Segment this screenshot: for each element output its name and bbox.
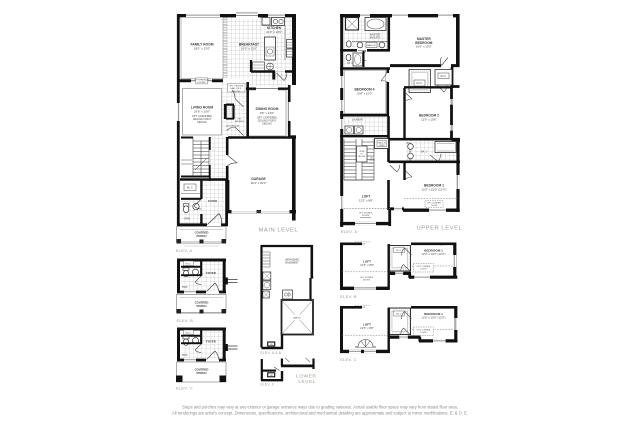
svg-text:W.I.C.: W.I.C. xyxy=(396,314,402,316)
svg-text:DOOR: DOOR xyxy=(421,332,428,334)
svg-text:W.I.C.: W.I.C. xyxy=(396,250,402,252)
svg-text:PWD: PWD xyxy=(185,218,191,221)
svg-text:FOYER: FOYER xyxy=(206,340,216,344)
svg-text:2R: 2R xyxy=(270,344,273,346)
svg-text:W.I.C.: W.I.C. xyxy=(440,76,447,78)
svg-text:18'0" x 13'0": 18'0" x 13'0" xyxy=(194,47,210,51)
svg-text:12'5" x 8'8": 12'5" x 8'8" xyxy=(360,263,374,267)
svg-text:UNEXC.: UNEXC. xyxy=(293,318,302,320)
svg-text:W.I.C.: W.I.C. xyxy=(416,83,423,85)
svg-text:HALL FR 9': HALL FR 9' xyxy=(230,87,242,90)
svg-text:DOOR: DOOR xyxy=(431,205,438,207)
svg-text:ELEV. C: ELEV. C xyxy=(261,382,275,386)
svg-text:PWD: PWD xyxy=(182,287,188,289)
svg-text:2R: 2R xyxy=(270,375,273,377)
svg-text:PORCH: PORCH xyxy=(196,304,206,308)
svg-text:DOORS: DOORS xyxy=(362,215,370,217)
svg-text:10'8" x 10'0": 10'8" x 10'0" xyxy=(357,91,373,95)
svg-text:BA. 3: BA. 3 xyxy=(347,62,353,65)
svg-text:MAIN LEVEL: MAIN LEVEL xyxy=(259,228,299,234)
svg-text:MAKE UP: MAKE UP xyxy=(367,44,377,47)
svg-text:W.I.C.: W.I.C. xyxy=(186,332,192,334)
svg-text:ELEV. A: ELEV. A xyxy=(176,248,192,253)
svg-text:12'5" x 8'8": 12'5" x 8'8" xyxy=(359,198,373,202)
svg-text:12'5" x 8'8": 12'5" x 8'8" xyxy=(360,326,374,330)
svg-text:PORCH: PORCH xyxy=(196,234,206,238)
svg-text:LAUNDRY: LAUNDRY xyxy=(352,119,364,122)
svg-text:ELEV. B: ELEV. B xyxy=(340,294,357,299)
svg-text:SERVERY: SERVERY xyxy=(235,121,245,123)
svg-text:12'0" x 10'0" (12'0"): 12'0" x 10'0" (12'0") xyxy=(421,316,445,320)
svg-text:Steps and porches may vary at: Steps and porches may vary at any exteri… xyxy=(182,405,458,410)
svg-text:BASEMENT: BASEMENT xyxy=(285,261,299,264)
svg-text:LINEN: LINEN xyxy=(379,145,385,147)
svg-text:18'4" x 20'0": 18'4" x 20'0" xyxy=(251,181,267,185)
svg-text:10'0" x 11'0": 10'0" x 11'0" xyxy=(241,47,257,51)
svg-text:ENSUITE: ENSUITE xyxy=(370,36,381,39)
svg-text:ELEV. A & B: ELEV. A & B xyxy=(261,351,282,355)
svg-text:BA. 2: BA. 2 xyxy=(421,151,428,154)
svg-text:DOORS: DOORS xyxy=(197,82,206,84)
svg-text:W.I.C.: W.I.C. xyxy=(187,186,194,189)
svg-text:LOWER: LOWER xyxy=(296,373,316,379)
svg-text:PWD: PWD xyxy=(182,355,188,357)
svg-text:W.I.C.: W.I.C. xyxy=(186,263,192,265)
svg-text:16'6" x 13'0": 16'6" x 13'0" xyxy=(416,45,432,49)
svg-text:12'0" x 10'0" (12'0"): 12'0" x 10'0" (12'0") xyxy=(421,252,445,256)
svg-text:DOORS: DOORS xyxy=(363,279,371,281)
svg-text:ELEV. C: ELEV. C xyxy=(340,357,357,362)
svg-text:UPPER LEVEL: UPPER LEVEL xyxy=(417,226,463,232)
svg-text:ELEV. C: ELEV. C xyxy=(176,385,193,390)
svg-text:LEVEL: LEVEL xyxy=(298,379,316,385)
svg-text:9'6" x 13'6": 9'6" x 13'6" xyxy=(260,111,274,115)
svg-text:ELEV. B: ELEV. B xyxy=(177,318,194,323)
svg-text:16'6" x 10'8": 16'6" x 10'8" xyxy=(194,109,210,113)
svg-text:10'0" x 10'9": 10'0" x 10'9" xyxy=(266,30,282,34)
svg-text:DOOR: DOOR xyxy=(421,268,428,270)
svg-text:BELOW: BELOW xyxy=(358,156,365,158)
svg-text:12'0" x 10'0" (12'0"): 12'0" x 10'0" (12'0") xyxy=(422,187,447,191)
svg-text:CEILING: CEILING xyxy=(262,123,272,126)
svg-text:FOYER: FOYER xyxy=(206,271,216,275)
svg-text:All renderings are artist's co: All renderings are artist's concept. Dim… xyxy=(172,411,468,416)
svg-text:CEILING: CEILING xyxy=(197,121,207,124)
svg-text:ELEV. A: ELEV. A xyxy=(341,229,357,234)
svg-text:PORCH: PORCH xyxy=(196,371,206,375)
svg-text:FOYER: FOYER xyxy=(208,199,217,203)
svg-text:11'6" x 10'6": 11'6" x 10'6" xyxy=(421,117,437,121)
